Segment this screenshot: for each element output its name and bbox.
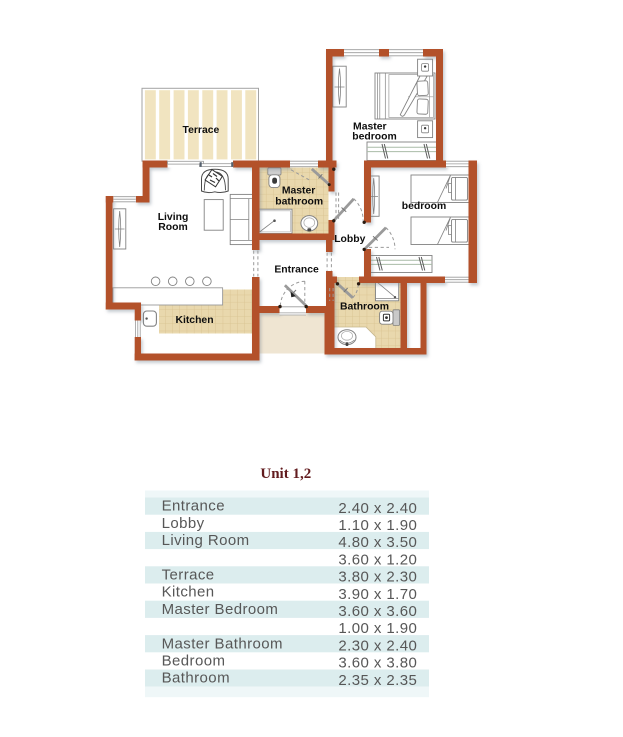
svg-text:Living Room: Living Room bbox=[162, 532, 250, 549]
svg-text:2.30 x 2.40: 2.30 x 2.40 bbox=[338, 637, 417, 654]
svg-text:4.80 x 3.50: 4.80 x 3.50 bbox=[338, 534, 417, 551]
svg-text:Bathroom: Bathroom bbox=[162, 670, 230, 687]
svg-text:Lobby: Lobby bbox=[162, 515, 205, 532]
svg-text:2.35 x 2.35: 2.35 x 2.35 bbox=[338, 672, 417, 689]
svg-text:Unit 1,2: Unit 1,2 bbox=[260, 466, 311, 482]
svg-text:Entrance: Entrance bbox=[274, 264, 319, 275]
svg-text:Master Bathroom: Master Bathroom bbox=[162, 635, 283, 652]
svg-text:Bedroom: Bedroom bbox=[162, 653, 226, 670]
svg-text:Bathroom: Bathroom bbox=[340, 302, 389, 313]
svg-text:bedroom: bedroom bbox=[402, 201, 446, 212]
svg-text:Kitchen: Kitchen bbox=[162, 584, 215, 601]
svg-text:Terrace: Terrace bbox=[162, 567, 215, 584]
svg-text:1.00 x 1.90: 1.00 x 1.90 bbox=[338, 620, 417, 637]
svg-text:1.10 x 1.90: 1.10 x 1.90 bbox=[338, 517, 417, 534]
svg-text:Entrance: Entrance bbox=[162, 498, 225, 515]
svg-text:bathroom: bathroom bbox=[275, 196, 323, 207]
svg-text:Kitchen: Kitchen bbox=[175, 315, 213, 326]
svg-text:3.80 x 2.30: 3.80 x 2.30 bbox=[338, 569, 417, 586]
svg-text:Terrace: Terrace bbox=[183, 125, 220, 136]
svg-text:3.60 x 3.80: 3.60 x 3.80 bbox=[338, 655, 417, 672]
svg-text:bedroom: bedroom bbox=[352, 131, 396, 142]
svg-text:3.60 x 1.20: 3.60 x 1.20 bbox=[338, 551, 417, 568]
svg-text:Lobby: Lobby bbox=[334, 234, 365, 245]
svg-text:3.60 x 3.60: 3.60 x 3.60 bbox=[338, 603, 417, 620]
svg-text:Room: Room bbox=[158, 222, 187, 233]
svg-text:Master Bedroom: Master Bedroom bbox=[162, 601, 279, 618]
svg-text:3.90 x 1.70: 3.90 x 1.70 bbox=[338, 586, 417, 603]
svg-text:Master: Master bbox=[282, 185, 316, 196]
svg-text:2.40 x 2.40: 2.40 x 2.40 bbox=[338, 500, 417, 517]
